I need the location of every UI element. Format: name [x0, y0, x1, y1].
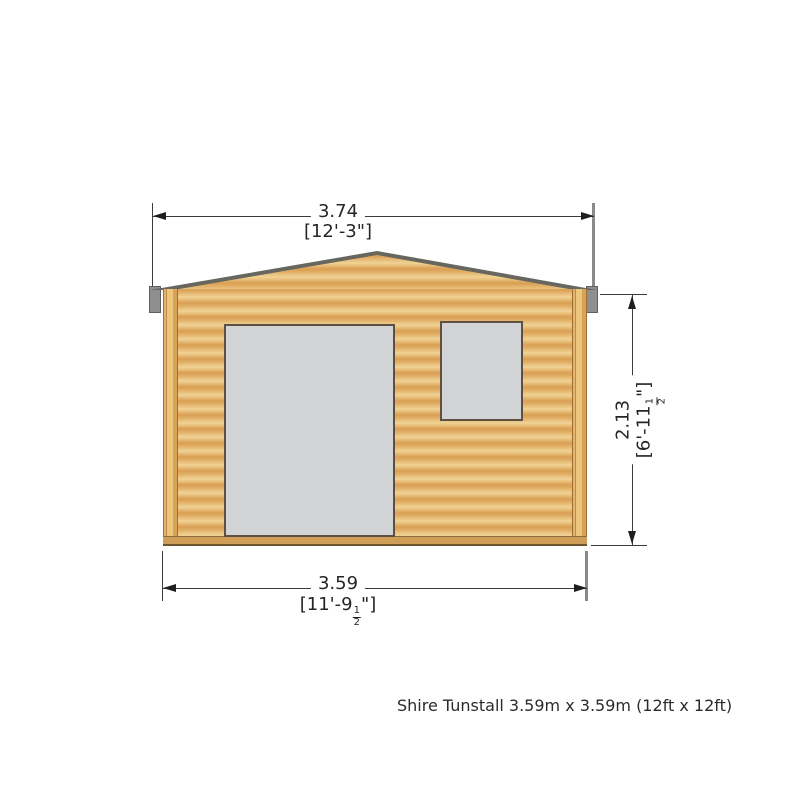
bottom-dim-metric: 3.59 [311, 574, 365, 594]
bottom-dim-imperial-pre: [11'-9 [300, 594, 353, 615]
bottom-dim-arrow-right [574, 584, 587, 592]
right-dim-imperial-pre: [6'-11 [634, 405, 655, 458]
window-opening [440, 321, 523, 421]
top-dim-arrow-left [153, 212, 166, 220]
gable-panel [150, 255, 597, 290]
right-dim-arrow-top [628, 296, 636, 309]
top-dim-metric: 3.74 [311, 202, 365, 222]
door-opening [224, 324, 395, 537]
gable-roof [150, 251, 597, 290]
product-caption: Shire Tunstall 3.59m x 3.59m (12ft x 12f… [397, 696, 732, 715]
top-dim-imperial: [12'-3"] [304, 222, 372, 242]
bottom-dim-arrow-left [163, 584, 176, 592]
bottom-dim-imperial: [11'-912"] [300, 595, 377, 628]
right-dim-text: 2.13 [6'-1112"] [611, 376, 670, 465]
front-wall [163, 289, 587, 546]
floor-bearer-band [163, 536, 587, 546]
right-dim-imperial: [6'-1112"] [634, 382, 668, 459]
bottom-dim-extension-left [162, 551, 163, 601]
right-corner-post [572, 289, 587, 546]
top-dim-arrow-right [581, 212, 594, 220]
right-dim-extension-top [600, 294, 647, 295]
elevation-drawing: 3.74 [12'-3"] 3.59 [11'-912"] 2.13 [6'-1… [0, 0, 800, 800]
right-dim-fraction: 12 [646, 397, 668, 405]
right-dim-arrow-bottom [628, 531, 636, 544]
right-dim-imperial-post: "] [634, 382, 655, 397]
top-dim-line [152, 216, 594, 217]
right-eave-cap [586, 286, 598, 313]
left-corner-post [163, 289, 178, 546]
bottom-dim-extension-right [585, 551, 588, 601]
left-eave-cap [149, 286, 161, 313]
bottom-dim-line [162, 588, 587, 589]
bottom-dim-fraction: 12 [353, 606, 361, 628]
bottom-dim-imperial-post: "] [361, 594, 376, 615]
right-dim-extension-bottom [591, 545, 647, 546]
right-dim-metric: 2.13 [613, 382, 634, 459]
